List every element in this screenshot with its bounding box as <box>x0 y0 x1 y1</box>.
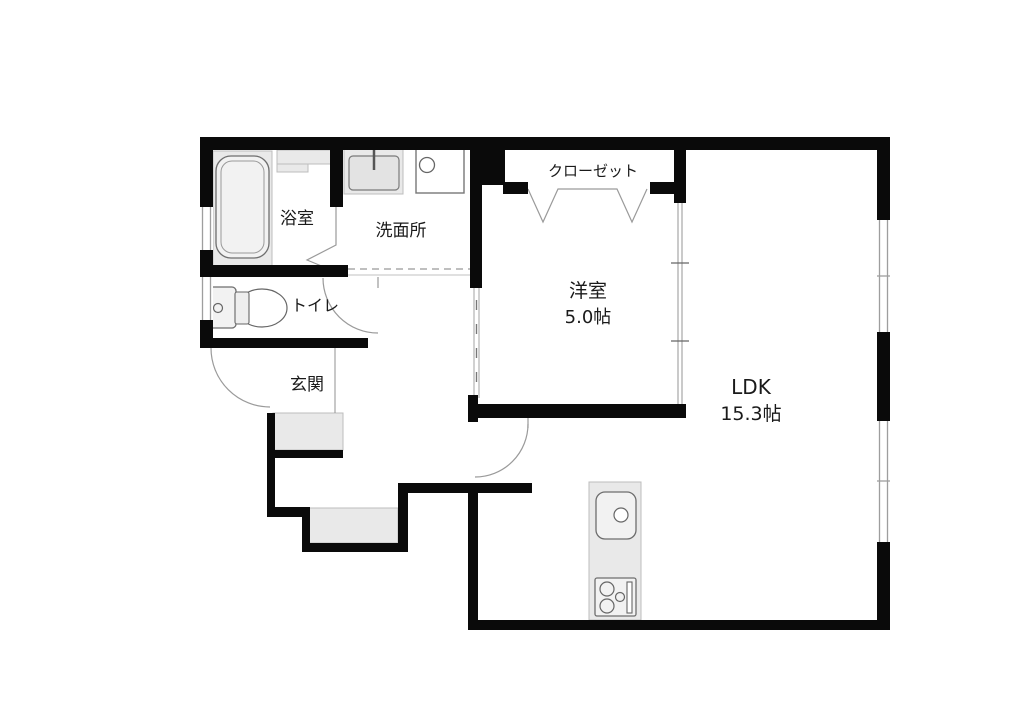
wall-segment <box>200 137 213 207</box>
wall-segment <box>203 265 348 277</box>
ldk-door-arc <box>475 424 528 477</box>
ldk-window-lower <box>877 421 890 542</box>
wall-segment <box>302 543 408 552</box>
bathtub <box>216 156 269 258</box>
toilet-seat <box>235 292 249 324</box>
wall-segment <box>468 483 478 630</box>
wall-segment <box>330 137 343 207</box>
wall-segment <box>398 483 408 552</box>
wall-segment <box>273 450 343 458</box>
wall-segment <box>503 182 528 194</box>
room-size-ldk: 15.3帖 <box>720 403 781 425</box>
wall-segment <box>877 332 890 421</box>
room-labels: 浴室 洗面所 クローゼット 洋室 5.0帖 LDK 15.3帖 トイレ 玄関 <box>280 162 782 425</box>
wall-segment <box>650 182 677 194</box>
wall-segment <box>200 338 368 348</box>
floor-plan-page: 浴室 洗面所 クローゼット 洋室 5.0帖 LDK 15.3帖 トイレ 玄関 <box>0 0 1031 728</box>
wall-segment <box>877 542 890 630</box>
wall-segment <box>468 620 890 630</box>
entrance-door-arc <box>211 348 270 407</box>
wall-segment <box>877 137 890 220</box>
bath-counter-step <box>277 164 308 172</box>
wall-segment <box>398 483 532 493</box>
room-label-entrance: 玄関 <box>290 375 324 395</box>
toilet-window <box>200 277 213 320</box>
bathroom-window <box>200 207 213 250</box>
floor-fills <box>213 146 641 620</box>
room-label-western-room: 洋室 <box>569 280 607 302</box>
wall-segment <box>302 517 310 552</box>
room-label-ldk: LDK <box>731 375 772 399</box>
closet-bifold-door <box>528 189 647 222</box>
stove-grill <box>627 582 632 613</box>
wall-segment <box>200 137 890 150</box>
wall-segment <box>470 404 686 418</box>
room-label-toilet: トイレ <box>291 296 339 315</box>
room-label-washroom: 洗面所 <box>376 221 427 241</box>
washing-machine-pan <box>416 147 464 193</box>
room-size-western-room: 5.0帖 <box>565 307 612 328</box>
wall-segment <box>470 148 482 288</box>
entrance-step-1 <box>273 413 343 450</box>
floor-plan: 浴室 洗面所 クローゼット 洋室 5.0帖 LDK 15.3帖 トイレ 玄関 <box>0 0 1031 728</box>
ldk-window-upper <box>877 220 890 332</box>
room-label-closet: クローゼット <box>548 162 638 180</box>
wall-segment <box>267 413 275 517</box>
fixtures <box>204 147 636 616</box>
bath-counter <box>277 150 332 164</box>
entrance-step-2 <box>308 508 398 543</box>
room-label-bathroom: 浴室 <box>280 209 314 229</box>
sink-drain <box>614 508 628 522</box>
